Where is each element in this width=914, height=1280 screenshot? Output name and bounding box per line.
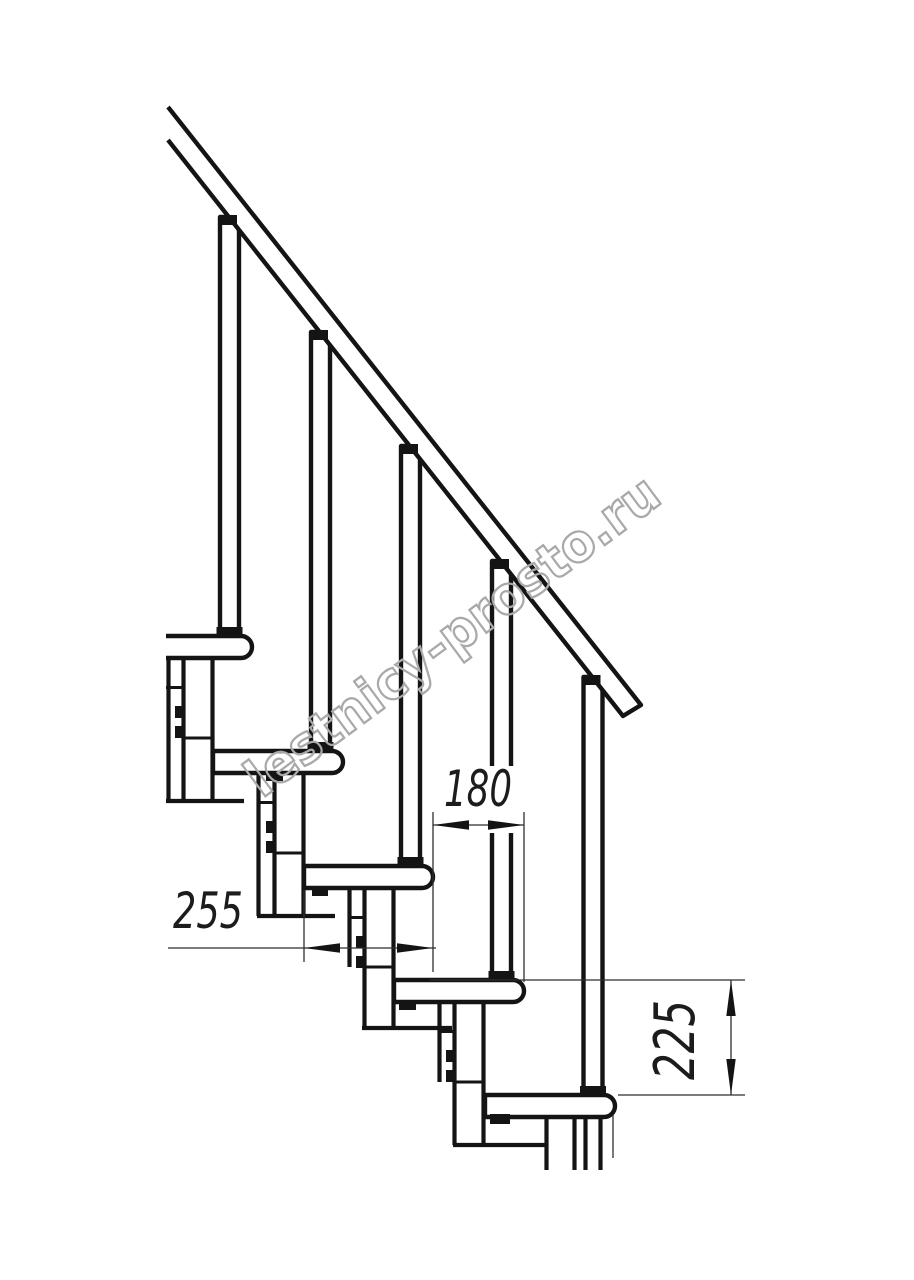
tread-connector-bolt (312, 886, 328, 896)
module-bolt (266, 821, 274, 833)
technical-drawing-page: 180 255 225 lestnicy-prosto.ru (0, 0, 914, 1280)
baluster-cap (222, 215, 237, 225)
tread-1 (166, 636, 252, 658)
baluster (220, 217, 239, 636)
baluster (311, 332, 330, 751)
arrowhead-right (397, 943, 433, 952)
dimension-value-going: 180 (444, 760, 512, 818)
module-bolt (266, 841, 274, 853)
module-bolt (446, 1050, 454, 1062)
arrowhead-left (304, 943, 340, 952)
tread-5 (485, 1095, 615, 1117)
tread-connector-bolt (490, 1114, 510, 1124)
dimension-value-depth: 255 (173, 882, 243, 940)
module-bolt (175, 706, 183, 718)
baluster-foot (489, 971, 515, 980)
support-module-5-partial (547, 1115, 614, 1170)
staircase-side-view-drawing: 180 255 225 lestnicy-prosto.ru (0, 0, 914, 1280)
tread-3 (304, 866, 433, 888)
arrowhead-down (726, 1059, 735, 1095)
baluster-foot (398, 857, 424, 866)
module-bolt (175, 726, 183, 738)
dimension-value-rise: 225 (643, 1000, 708, 1080)
tread-4 (394, 980, 524, 1002)
module-bolt (356, 936, 364, 948)
baluster-foot (217, 627, 243, 636)
baluster-cap (313, 330, 328, 340)
tread-connector-bolt (399, 1000, 416, 1010)
baluster-foot (580, 1086, 606, 1095)
baluster-cap (403, 444, 418, 454)
baluster-cap (586, 675, 601, 685)
arrowhead-up (726, 980, 735, 1016)
baluster (584, 677, 603, 1095)
module-bolt (356, 956, 364, 968)
watermark-text: lestnicy-prosto.ru (234, 464, 672, 810)
support-module-1 (166, 657, 244, 801)
module-bolt (446, 1070, 454, 1082)
